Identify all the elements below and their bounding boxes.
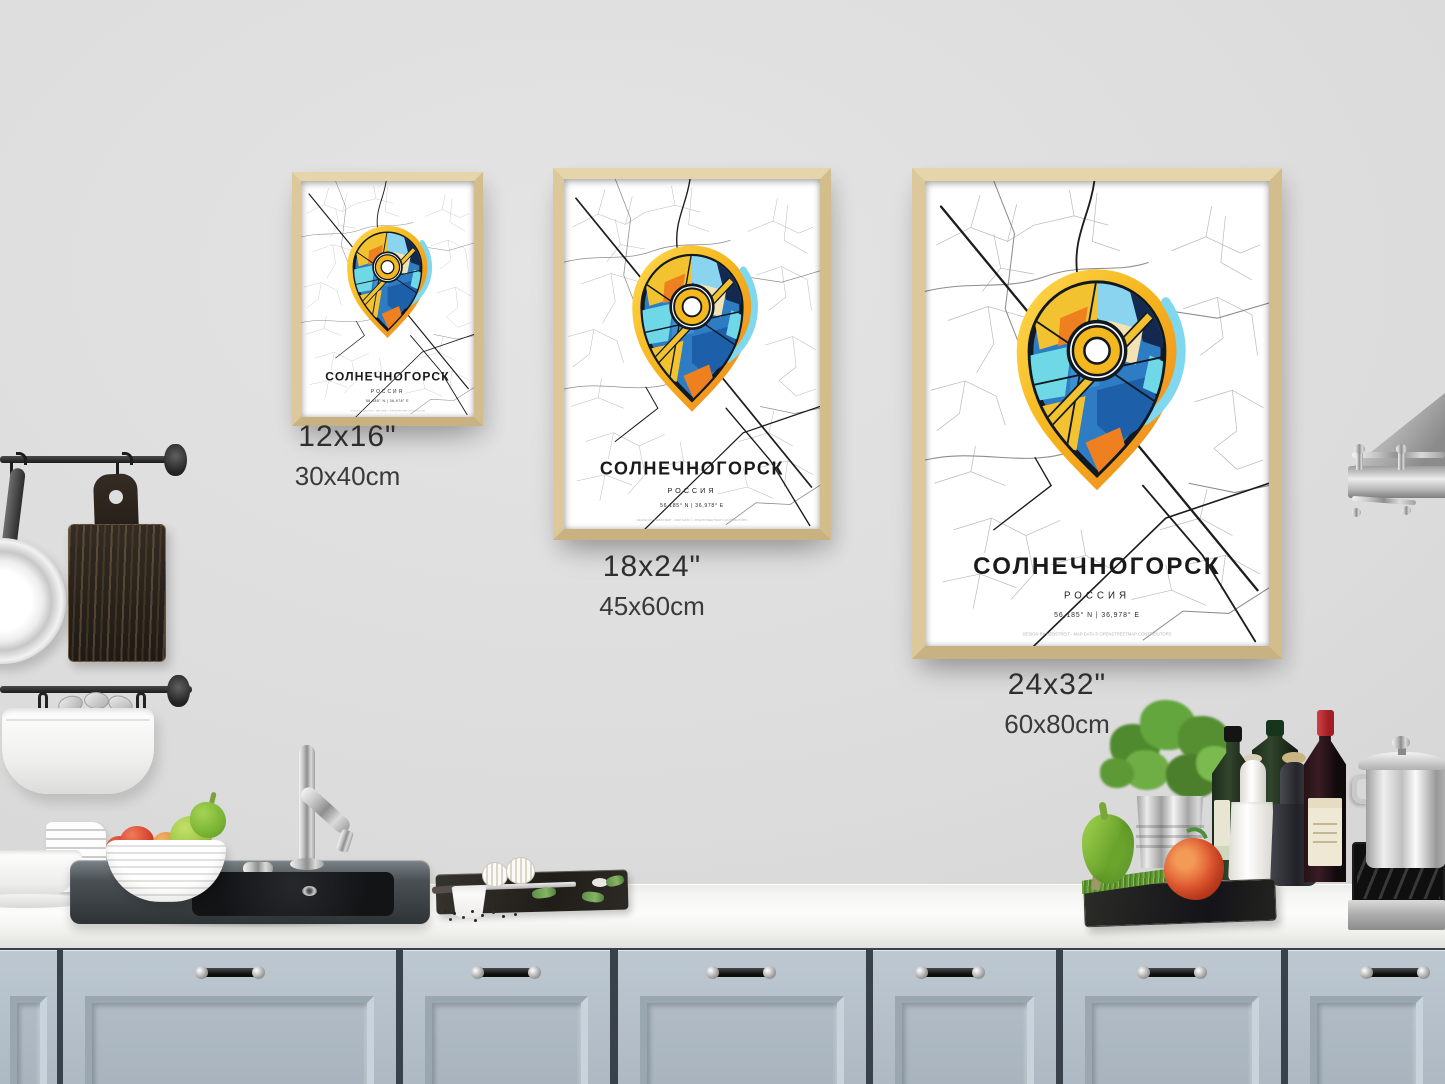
ribbed-bowl <box>106 840 226 902</box>
range-hood-band <box>1348 466 1445 498</box>
hood-rail-finial <box>1402 506 1411 515</box>
board-hole <box>109 490 123 504</box>
size-inches: 12x16" <box>252 420 443 454</box>
cabinet-handle <box>706 966 776 979</box>
poster-large <box>912 168 1282 659</box>
poster-small <box>292 172 483 426</box>
rustic-cutting-board <box>68 472 168 664</box>
pot-lid-knob <box>1392 736 1410 749</box>
poster-large-art <box>925 181 1269 646</box>
cabinet-handle <box>1360 966 1430 979</box>
utensil-bucket <box>2 708 154 794</box>
stove-front-panel <box>1348 900 1445 930</box>
size-label-small: 12x16" 30x40cm <box>252 420 443 492</box>
kitchen-scene: СОЛНЕЧНОГОРСК РОССИЯ 56,185° N | 36,978°… <box>0 0 1445 1084</box>
green-pepper <box>1082 814 1134 884</box>
wine-bottle-label <box>1308 798 1342 866</box>
herb-plant <box>1100 758 1134 788</box>
door-panel <box>85 996 374 1084</box>
rail-end-cap <box>167 675 190 707</box>
cabinet-handle <box>195 966 265 979</box>
frying-pan <box>0 538 66 664</box>
cabinet-door <box>873 950 1056 1084</box>
cabinet-door <box>1288 950 1445 1084</box>
oil-bottle-cap <box>1224 726 1242 742</box>
slate-board-group <box>436 862 632 914</box>
board-body <box>68 524 166 662</box>
cabinet-door <box>1063 950 1281 1084</box>
small-white-bowl <box>450 886 488 918</box>
base-cabinets <box>0 948 1445 1084</box>
door-panel <box>10 996 47 1084</box>
cabinet-door <box>63 950 396 1084</box>
cooking-pot <box>1366 766 1445 868</box>
white-grinder-body <box>1228 802 1276 884</box>
faucet-base <box>290 858 324 870</box>
poster-small-art <box>301 181 474 417</box>
red-pepper <box>1164 838 1224 900</box>
sink-drain <box>302 886 317 896</box>
hood-rail-finial <box>1354 444 1365 454</box>
white-grinder <box>1240 760 1266 808</box>
door-panel <box>1085 996 1259 1084</box>
size-label-medium: 18x24" 45x60cm <box>513 550 791 622</box>
poster-medium-art <box>564 179 820 529</box>
hood-rail-finial <box>1396 444 1407 454</box>
cabinet-handle <box>915 966 985 979</box>
cabinet-handle <box>471 966 541 979</box>
wall-rail-top <box>0 456 186 463</box>
door-panel <box>640 996 844 1084</box>
size-cm: 30x40cm <box>252 461 443 492</box>
garlic-bulb <box>506 857 535 884</box>
cabinet-door <box>0 950 57 1084</box>
door-panel <box>1310 996 1423 1084</box>
size-cm: 45x60cm <box>513 591 791 622</box>
wine-bottle-cap <box>1317 710 1334 736</box>
green-bell-pepper <box>190 802 226 838</box>
oil-bottle-cap <box>1266 720 1284 736</box>
black-grinder <box>1280 762 1308 808</box>
fruit-bowl-group <box>106 808 228 906</box>
door-panel <box>895 996 1034 1084</box>
hood-rail-finial <box>1352 508 1361 517</box>
size-inches: 18x24" <box>513 550 791 584</box>
poster-medium <box>553 168 831 540</box>
peppercorns <box>444 910 447 913</box>
cabinet-door <box>618 950 866 1084</box>
size-inches: 24x32" <box>872 668 1242 702</box>
garlic-bulb <box>482 862 508 887</box>
door-panel <box>425 996 588 1084</box>
cabinet-handle <box>1137 966 1207 979</box>
cabinet-door <box>403 950 610 1084</box>
